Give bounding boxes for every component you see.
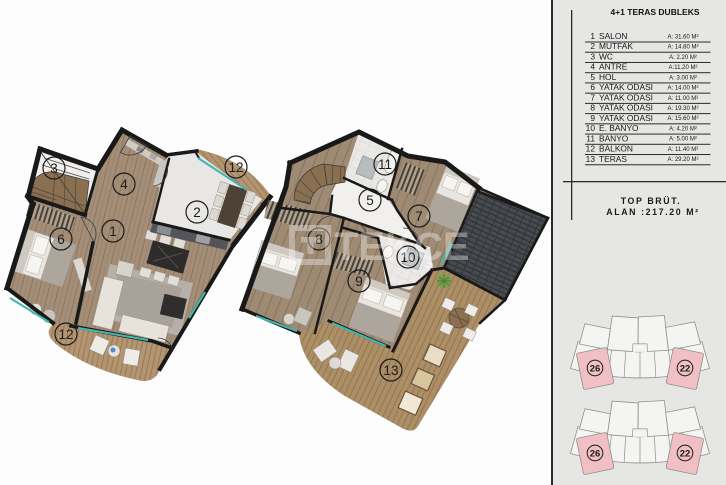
svg-text:22: 22 [680, 448, 691, 459]
svg-text:A: 11.40 M²: A: 11.40 M² [668, 147, 699, 153]
svg-text:A: 2.20 M²: A: 2.20 M² [669, 55, 697, 61]
svg-text:9: 9 [590, 113, 595, 123]
svg-text:26: 26 [590, 448, 601, 459]
svg-text:WC: WC [599, 52, 613, 62]
svg-text:4: 4 [120, 177, 128, 192]
svg-text:5: 5 [590, 72, 595, 82]
svg-text:12: 12 [58, 327, 73, 342]
svg-text:11: 11 [586, 133, 595, 143]
svg-text:A: 31.60 M²: A: 31.60 M² [667, 34, 698, 40]
svg-text:A: 3.00 M²: A: 3.00 M² [669, 75, 697, 81]
svg-text:YATAK ODASI: YATAK ODASI [599, 113, 653, 123]
svg-text:4+1 TERAS DUBLEKS: 4+1 TERAS DUBLEKS [610, 7, 699, 17]
svg-text:A: 19.30 M²: A: 19.30 M² [667, 106, 698, 112]
svg-text:TERAS: TERAS [599, 154, 627, 164]
svg-text:6: 6 [57, 232, 65, 247]
svg-text:1: 1 [109, 224, 117, 239]
svg-text:SALON: SALON [599, 31, 627, 41]
svg-text:1: 1 [590, 31, 595, 41]
svg-text:MUTFAK: MUTFAK [599, 41, 633, 51]
svg-text:2: 2 [590, 41, 595, 51]
svg-text:3: 3 [590, 52, 595, 62]
svg-text:10: 10 [586, 123, 596, 133]
svg-text:6: 6 [590, 82, 595, 92]
svg-text:22: 22 [680, 363, 691, 374]
svg-text:E. BANYO: E. BANYO [599, 123, 639, 133]
svg-text:A:11.20 M²: A:11.20 M² [669, 65, 698, 71]
svg-text:A: 29.20 M²: A: 29.20 M² [667, 157, 698, 163]
svg-text:BANYO: BANYO [599, 133, 629, 143]
svg-text:3: 3 [50, 161, 58, 176]
svg-text:9: 9 [355, 274, 363, 289]
svg-text:A: 15.60 M²: A: 15.60 M² [667, 116, 698, 122]
svg-text:7: 7 [590, 92, 595, 102]
svg-text:A: 14.00 M²: A: 14.00 M² [667, 86, 698, 92]
svg-text:A: 14.80 M²: A: 14.80 M² [667, 45, 698, 51]
svg-text:26: 26 [590, 363, 601, 374]
svg-text:4: 4 [590, 62, 595, 72]
svg-text:ALAN :217.20 M²: ALAN :217.20 M² [606, 207, 699, 217]
svg-text:A: 4.20 M²: A: 4.20 M² [669, 127, 697, 133]
svg-text:TEKÇE: TEKÇE [334, 225, 470, 269]
svg-text:7: 7 [415, 209, 423, 224]
svg-text:12: 12 [228, 160, 243, 175]
svg-text:13: 13 [586, 154, 596, 164]
svg-text:11: 11 [378, 157, 392, 172]
svg-text:YATAK ODASI: YATAK ODASI [599, 92, 653, 102]
svg-text:13: 13 [383, 363, 398, 378]
svg-text:ANTRE: ANTRE [599, 62, 628, 72]
svg-text:A: 11.00 M²: A: 11.00 M² [668, 96, 699, 102]
svg-text:2: 2 [193, 205, 201, 220]
svg-text:YATAK ODASI: YATAK ODASI [599, 103, 653, 113]
svg-text:A: 5.00 M²: A: 5.00 M² [669, 137, 697, 143]
svg-text:12: 12 [586, 144, 596, 154]
svg-text:5: 5 [366, 193, 374, 208]
svg-text:YATAK ODASI: YATAK ODASI [599, 82, 653, 92]
svg-text:HOL: HOL [599, 72, 617, 82]
svg-text:TOP BRÜT.: TOP BRÜT. [621, 196, 682, 206]
svg-text:8: 8 [590, 103, 595, 113]
svg-text:BALKON: BALKON [599, 144, 633, 154]
